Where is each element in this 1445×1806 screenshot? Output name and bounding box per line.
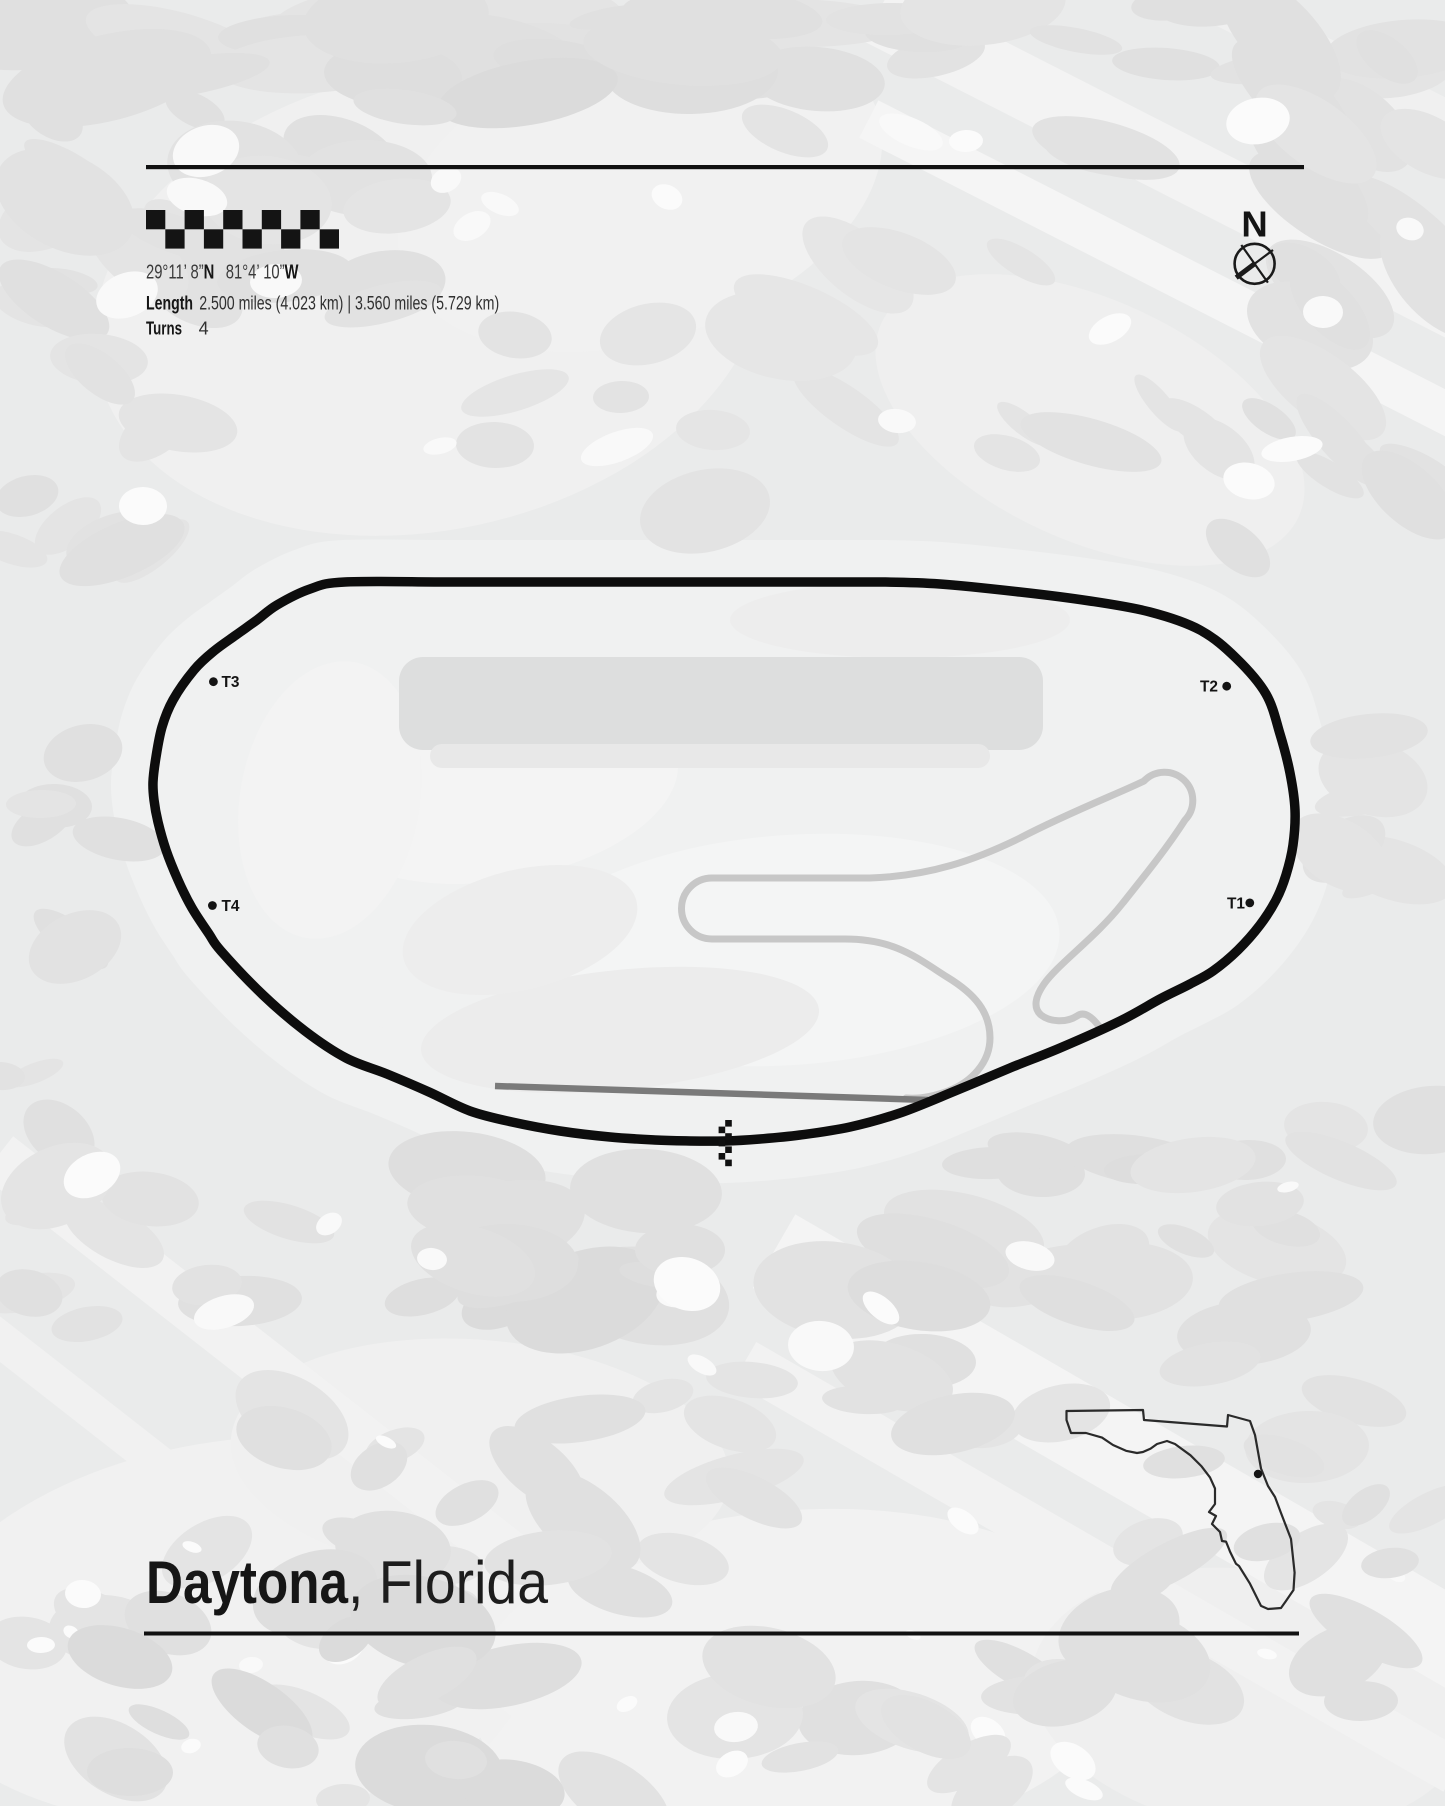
- svg-text:29°11’ 8”N 81°4’ 10”W: 29°11’ 8”N 81°4’ 10”W: [146, 261, 299, 283]
- svg-text:T3: T3: [222, 674, 240, 691]
- svg-text:N: N: [1241, 204, 1267, 245]
- svg-text:4: 4: [199, 319, 209, 339]
- svg-text:, Florida: , Florida: [348, 1548, 548, 1616]
- svg-text:2.500 miles (4.023 km) | 3.560: 2.500 miles (4.023 km) | 3.560 miles (5.…: [199, 293, 499, 315]
- svg-text:Daytona: Daytona: [146, 1548, 349, 1616]
- svg-text:T1: T1: [1227, 895, 1245, 912]
- svg-text:Turns: Turns: [146, 319, 182, 339]
- svg-text:T4: T4: [222, 898, 240, 915]
- svg-text:Length: Length: [146, 293, 193, 315]
- svg-text:T2: T2: [1200, 679, 1218, 696]
